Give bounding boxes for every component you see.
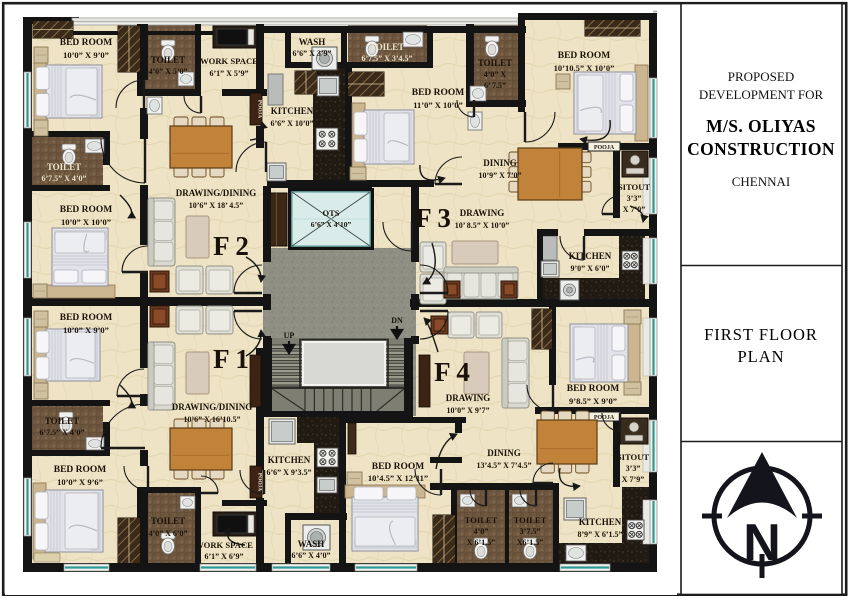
svg-text:X6’1.5”: X6’1.5” — [517, 538, 543, 547]
svg-text:6’1” X 5’9”: 6’1” X 5’9” — [209, 69, 248, 78]
svg-text:3’7.5”: 3’7.5” — [520, 527, 541, 536]
svg-text:6’7.5” X 4’0”: 6’7.5” X 4’0” — [41, 174, 86, 183]
svg-text:TOILET: TOILET — [151, 55, 185, 65]
svg-text:BED ROOM: BED ROOM — [54, 465, 107, 475]
svg-text:10’0” X 9’7”: 10’0” X 9’7” — [446, 406, 489, 415]
svg-text:BED ROOM: BED ROOM — [567, 384, 620, 394]
svg-text:POOJA: POOJA — [594, 145, 615, 151]
svg-text:BED ROOM: BED ROOM — [558, 51, 611, 61]
svg-text:4’0” X: 4’0” X — [484, 70, 507, 79]
svg-text:4’0” X 6’0”: 4’0” X 6’0” — [148, 529, 187, 538]
svg-text:6’7.5” X 4’0”: 6’7.5” X 4’0” — [39, 428, 84, 437]
svg-text:10’0” X 9’0”: 10’0” X 9’0” — [63, 50, 109, 60]
svg-text:X 7’0”: X 7’0” — [623, 205, 645, 214]
svg-text:6’6” X 4’10”: 6’6” X 4’10” — [311, 220, 352, 229]
svg-text:WASH: WASH — [298, 539, 325, 549]
svg-text:M/S. OLIYAS: M/S. OLIYAS — [706, 116, 816, 136]
svg-text:BED ROOM: BED ROOM — [60, 205, 113, 215]
svg-text:10’6” X 16’10.5”: 10’6” X 16’10.5” — [183, 415, 240, 424]
svg-text:10’0” X 9’6”: 10’0” X 9’6” — [57, 477, 103, 487]
svg-text:DRAWING/DINING: DRAWING/DINING — [176, 188, 257, 198]
svg-text:6’6” X 10’0”: 6’6” X 10’0” — [270, 119, 313, 128]
svg-text:X 6’1.5”: X 6’1.5” — [467, 538, 495, 547]
svg-text:WASH: WASH — [299, 37, 326, 47]
svg-text:F 1: F 1 — [213, 344, 249, 374]
svg-text:3’3”: 3’3” — [627, 194, 642, 203]
svg-text:KITCHEN: KITCHEN — [271, 106, 314, 116]
svg-text:10’0” X 10’0”: 10’0” X 10’0” — [61, 217, 111, 227]
svg-text:DINING: DINING — [487, 448, 521, 458]
svg-text:10’ 8.5” X 10’0”: 10’ 8.5” X 10’0” — [455, 221, 510, 230]
svg-text:SITOUT: SITOUT — [618, 182, 651, 192]
svg-text:FIRST FLOOR: FIRST FLOOR — [704, 325, 818, 344]
svg-text:F 3: F 3 — [415, 203, 451, 233]
svg-text:10’0” X 9’0”: 10’0” X 9’0” — [63, 325, 109, 335]
svg-text:CHENNAI: CHENNAI — [732, 174, 791, 189]
svg-text:TOILET: TOILET — [370, 42, 404, 52]
svg-text:DRAWING: DRAWING — [460, 208, 505, 218]
svg-text:11’0” X 10’0”: 11’0” X 10’0” — [413, 100, 463, 110]
svg-text:F 2: F 2 — [213, 231, 249, 261]
svg-text:4’0”: 4’0” — [474, 527, 489, 536]
svg-text:4’0” X 5’0”: 4’0” X 5’0” — [148, 67, 187, 76]
svg-text:TOILET: TOILET — [47, 162, 81, 172]
svg-text:TOILET: TOILET — [465, 515, 498, 525]
svg-text:KITCHEN: KITCHEN — [579, 517, 622, 527]
svg-text:POOJA: POOJA — [257, 100, 263, 118]
svg-text:TOILET: TOILET — [478, 58, 512, 68]
svg-text:SITOUT: SITOUT — [617, 452, 650, 462]
svg-text:6’1” X 6’9”: 6’1” X 6’9” — [204, 552, 243, 561]
svg-text:DEVELOPMENT FOR: DEVELOPMENT FOR — [699, 87, 824, 102]
svg-text:10’10.5” X 10’0”: 10’10.5” X 10’0” — [554, 63, 615, 73]
svg-text:OTS: OTS — [322, 208, 339, 218]
svg-text:DRAWING: DRAWING — [446, 393, 491, 403]
svg-text:TOILET: TOILET — [514, 515, 547, 525]
svg-text:KITCHEN: KITCHEN — [569, 251, 612, 261]
svg-text:9’8.5” X 9’0”: 9’8.5” X 9’0” — [569, 396, 617, 406]
svg-text:6’ 7.5”: 6’ 7.5” — [484, 81, 506, 90]
svg-text:DRAWING/DINING: DRAWING/DINING — [172, 402, 253, 412]
svg-text:DINING: DINING — [483, 158, 517, 168]
svg-text:BED ROOM: BED ROOM — [60, 313, 113, 323]
svg-text:TOILET: TOILET — [151, 516, 185, 526]
svg-text:WORK SPACE: WORK SPACE — [200, 56, 258, 66]
svg-text:3’3”: 3’3” — [626, 464, 641, 473]
svg-text:DN: DN — [391, 316, 403, 325]
svg-text:POOJA: POOJA — [257, 473, 263, 491]
svg-text:KITCHEN: KITCHEN — [268, 455, 311, 465]
svg-text:UP: UP — [284, 331, 295, 340]
svg-text:6’6” X 3’9”: 6’6” X 3’9” — [292, 49, 331, 58]
svg-text:PROPOSED: PROPOSED — [728, 69, 794, 84]
svg-text:10’4.5” X 12’11”: 10’4.5” X 12’11” — [368, 473, 428, 483]
svg-text:F 4: F 4 — [434, 357, 470, 387]
svg-text:TOILET: TOILET — [45, 416, 79, 426]
svg-text:6’6” X 9’3.5”: 6’6” X 9’3.5” — [266, 468, 311, 477]
svg-text:8’9” X 6’1.5”: 8’9” X 6’1.5” — [577, 530, 622, 539]
svg-text:6’6” X 4’0”: 6’6” X 4’0” — [291, 551, 330, 560]
svg-text:N: N — [743, 514, 781, 572]
svg-text:13’4.5” X 7’4.5”: 13’4.5” X 7’4.5” — [476, 461, 531, 470]
svg-text:10’6” X 18’ 4.5”: 10’6” X 18’ 4.5” — [189, 201, 244, 210]
svg-text:WORK SPACE: WORK SPACE — [195, 540, 253, 550]
svg-text:CONSTRUCTION: CONSTRUCTION — [687, 139, 835, 159]
svg-text:BED ROOM: BED ROOM — [412, 88, 465, 98]
svg-text:BED ROOM: BED ROOM — [60, 38, 113, 48]
svg-text:6’7.5” X 3’4.5”: 6’7.5” X 3’4.5” — [361, 54, 412, 63]
svg-text:BED ROOM: BED ROOM — [372, 462, 425, 472]
svg-text:PLAN: PLAN — [737, 347, 784, 366]
svg-text:9’0” X 6’0”: 9’0” X 6’0” — [570, 264, 609, 273]
svg-text:X 7’9”: X 7’9” — [622, 475, 644, 484]
svg-text:10’9” X 7’0”: 10’9” X 7’0” — [478, 171, 521, 180]
